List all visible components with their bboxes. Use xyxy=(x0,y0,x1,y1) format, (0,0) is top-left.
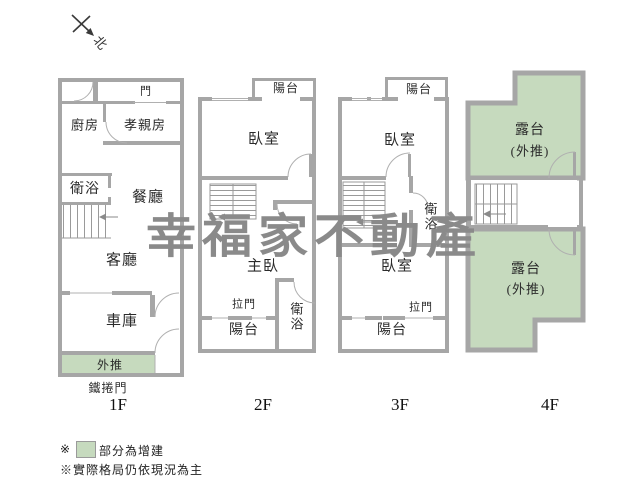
legend-marker-1: ※ xyxy=(60,442,70,457)
floor-label-1f: 1F xyxy=(109,395,127,415)
room-label-bedroom-2f: 臥室 xyxy=(248,133,280,148)
stairs-1f xyxy=(62,205,118,238)
room-label-bathroom-1f: 衛浴 xyxy=(70,183,100,197)
floor-plan-4f xyxy=(466,73,583,350)
floor-label-4f: 4F xyxy=(541,395,559,415)
room-label-push-out-1f: 外推 xyxy=(97,359,123,371)
legend-green-swatch xyxy=(76,441,96,458)
room-label-balcony-top-2f: 陽台 xyxy=(273,82,299,94)
room-label-terrace-upper-note-4f: (外推) xyxy=(511,145,550,158)
room-label-balcony-top-3f: 陽台 xyxy=(406,83,432,95)
room-label-balcony-bottom-3f: 陽台 xyxy=(377,324,407,338)
room-label-dining-1f: 餐廳 xyxy=(132,191,164,206)
room-label-bedroom-upper-3f: 臥室 xyxy=(384,134,416,149)
label-sliding-door-2f: 拉門 xyxy=(232,300,256,311)
floor-label-2f: 2F xyxy=(254,395,272,415)
legend-addition-text: 部分為增建 xyxy=(99,442,164,459)
agency-watermark: 幸福家不動產 xyxy=(146,213,482,260)
label-sliding-door-3f: 拉門 xyxy=(409,303,433,314)
label-rollup-gate-1f: 鐵捲門 xyxy=(88,382,127,394)
compass-north-icon xyxy=(72,15,94,36)
room-label-parents-room-1f: 孝親房 xyxy=(124,119,166,132)
room-label-terrace-lower-note-4f: (外推) xyxy=(507,283,546,296)
room-label-balcony-bottom-2f: 陽台 xyxy=(229,324,259,338)
legend-disclaimer-text: ※實際格局仍依現況為主 xyxy=(60,461,203,478)
room-label-kitchen-1f: 廚房 xyxy=(71,119,99,132)
room-label-terrace-lower-4f: 露台 xyxy=(511,263,541,277)
room-label-living-1f: 客廳 xyxy=(106,254,138,269)
floor-plan-page: 北 門 廚房 孝親房 衛浴 餐廳 客廳 車庫 外推 鐵捲門 1F 陽台 臥室 主… xyxy=(0,0,640,480)
floor-label-3f: 3F xyxy=(391,395,409,415)
room-label-entry-door-1f: 門 xyxy=(140,87,152,98)
room-label-bathroom-2f: 衛浴 xyxy=(290,302,303,332)
room-label-garage-1f: 車庫 xyxy=(106,315,138,330)
room-label-terrace-upper-4f: 露台 xyxy=(515,124,545,138)
